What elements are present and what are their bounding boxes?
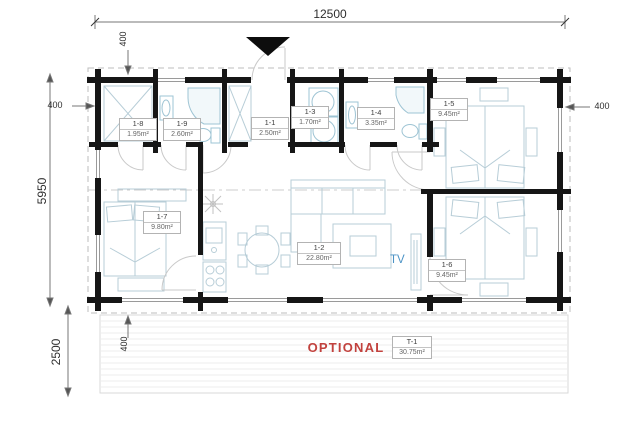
dresser-1-6 [480,283,508,296]
room-area: 1.95m² [120,130,156,140]
nightstand [526,128,537,156]
closet-hallway [229,86,251,141]
window-right-1 [559,108,562,152]
toilet-bowl-1-4 [402,125,418,138]
kitchen-units [203,222,226,292]
room-id: 1-4 [358,108,394,119]
room-area: 2.50m² [252,129,288,139]
dim-total-width: 12500 [300,7,360,21]
floor-plan-canvas: 12500 5950 2500 400 400 400 400 1-1 2.50… [0,0,628,446]
window-top-2 [368,79,394,82]
room-label-1-1: 1-1 2.50m² [251,117,289,140]
room-area: 9.45m² [431,110,467,120]
room-label-1-4: 1-4 3.35m² [357,107,395,130]
window-top-3 [437,79,466,82]
dining-table-set [238,226,290,274]
window-bottom-1 [122,299,183,302]
room-id: 1-5 [431,99,467,110]
entrance-arrow-icon [246,37,290,56]
dim-terrace-depth: 2500 [49,330,63,374]
room-label-1-9: 1-9 2.60m² [163,118,201,141]
room-area: 2.60m² [164,130,200,140]
dim-overhang-top: 400 [118,25,128,53]
door-1-3 [345,145,370,170]
room-label-1-5: 1-5 9.45m² [430,98,468,121]
door-1-7 [162,256,196,290]
room-area: 22.80m² [298,254,340,264]
window-bottom-4 [462,299,526,302]
ceiling-lamp-icon [203,194,223,214]
door-1-4 [397,145,422,170]
dim-line-400-left [72,103,94,109]
window-top-4 [497,79,540,82]
terrace-area: 30.75m² [393,348,431,358]
window-bottom-2 [228,299,287,302]
floor-plan-drawing [0,0,628,446]
window-top-1 [158,79,185,82]
room-id: 1-8 [120,119,156,130]
room-id: 1-1 [252,118,288,129]
dim-line-400-top [125,50,131,74]
room-area: 9.45m² [429,271,465,281]
kitchen-sink [206,228,222,243]
door-1-5 [392,152,430,190]
bed-1-7 [104,189,186,291]
window-left-2 [97,235,100,272]
room-id: 1-6 [429,260,465,271]
room-id: 1-2 [298,243,340,254]
room-label-1-8: 1-8 1.95m² [119,118,157,141]
room-id: 1-3 [292,107,328,118]
bench-1-7 [118,278,164,291]
window-left-1 [97,150,100,178]
room-area: 1.70m² [292,118,328,128]
room-label-1-3: 1-3 1.70m² [291,106,329,129]
room-area: 9.80m² [144,223,180,233]
shower-1-4 [396,87,424,113]
dim-main-depth: 5950 [35,169,49,213]
door-1-8 [118,145,143,170]
room-id: 1-9 [164,119,200,130]
room-id: 1-7 [144,212,180,223]
window-right-2 [559,210,562,252]
room-label-1-2: 1-2 22.80m² [297,242,341,265]
dim-overhang-left: 400 [41,100,69,110]
terrace-id: T-1 [393,337,431,348]
terrace-label-t1: T-1 30.75m² [392,336,432,359]
desk-1-7 [118,189,186,201]
optional-label: OPTIONAL [300,340,392,355]
room-label-1-6: 1-6 9.45m² [428,259,466,282]
dim-overhang-right: 400 [588,101,616,111]
dresser-1-5 [480,88,508,101]
window-bottom-3 [323,299,417,302]
tv-label: TV [390,254,420,266]
nightstand [526,228,537,256]
coffee-table [333,224,391,268]
room-label-1-7: 1-7 9.80m² [143,211,181,234]
door-1-9 [161,145,186,170]
toilet-tank-1-9 [211,128,220,143]
dim-overhang-bottom: 400 [119,330,129,358]
dim-line-2500 [65,306,71,396]
nightstand [434,228,445,256]
toilet-tank-1-4 [419,124,427,139]
room-area: 3.35m² [358,119,394,129]
